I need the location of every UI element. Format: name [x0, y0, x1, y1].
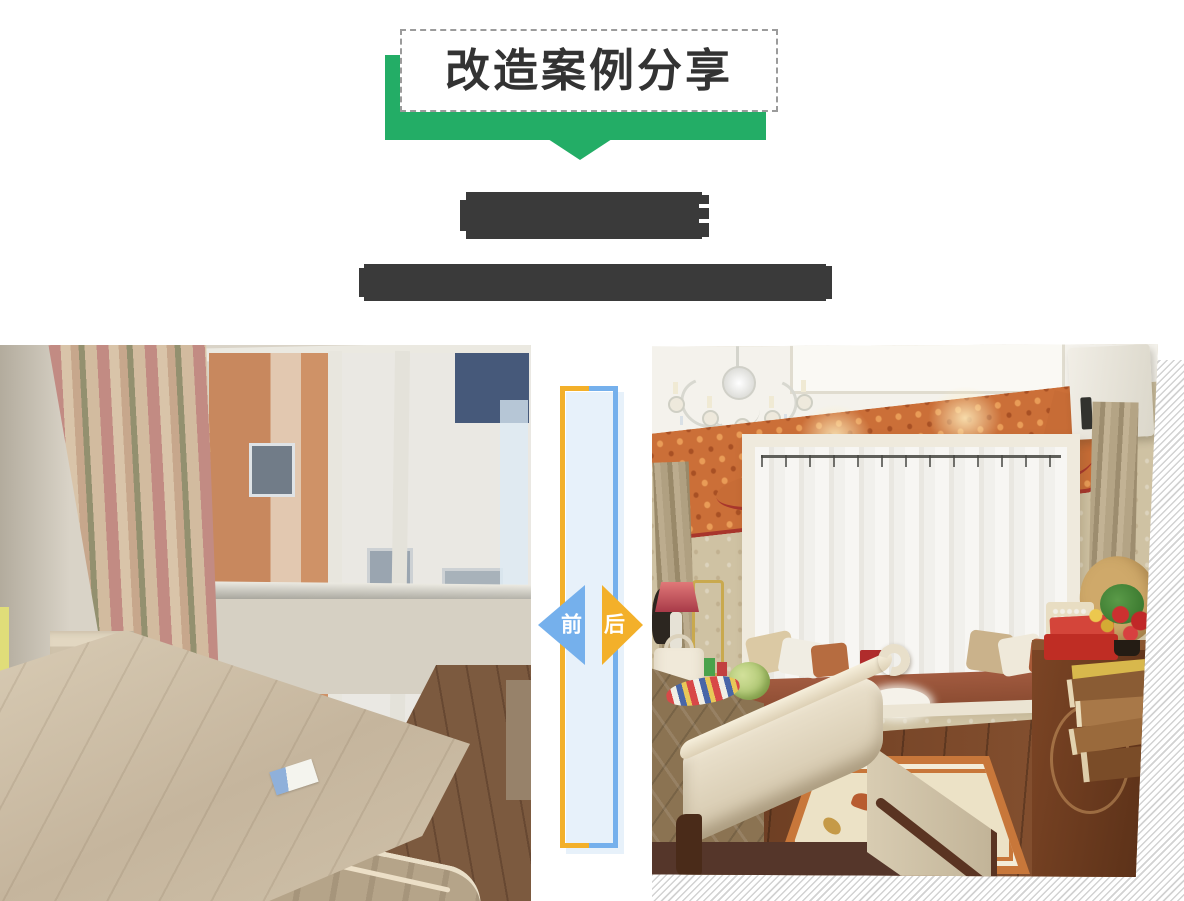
obscured-subtitle-line	[364, 264, 826, 301]
chandelier-candle	[801, 380, 806, 392]
decor-candle	[717, 662, 727, 676]
after-arrow-label: 后	[604, 615, 625, 636]
before-arrow: 前	[538, 585, 585, 665]
chandelier-bobeche	[668, 396, 685, 413]
before-glass-tint	[500, 400, 528, 590]
ribbon-tail-triangle	[548, 139, 612, 160]
after-photo	[652, 344, 1158, 877]
before-photo	[0, 345, 531, 901]
obscured-title-line	[466, 192, 702, 239]
chandelier-crystal	[680, 416, 683, 425]
section-title: 改造案例分享	[445, 48, 733, 93]
chandelier-candle	[707, 396, 712, 408]
after-arrow: 后	[602, 585, 643, 665]
section-title-box: 改造案例分享	[400, 29, 778, 112]
chandelier-bobeche	[702, 410, 719, 427]
decor-candle	[704, 658, 715, 676]
chandelier-candle	[673, 382, 678, 394]
flower-pot	[1114, 640, 1140, 656]
before-building-window	[249, 443, 295, 497]
page: 改造案例分享	[0, 0, 1184, 901]
chandelier-candle	[769, 396, 774, 408]
after-curtain-pleats	[761, 455, 1061, 467]
bed-leg	[676, 814, 702, 877]
red-box	[1044, 634, 1118, 660]
before-arrow-label: 前	[561, 615, 582, 636]
before-corner-object	[506, 680, 531, 800]
table-lamp-shade	[655, 582, 699, 612]
